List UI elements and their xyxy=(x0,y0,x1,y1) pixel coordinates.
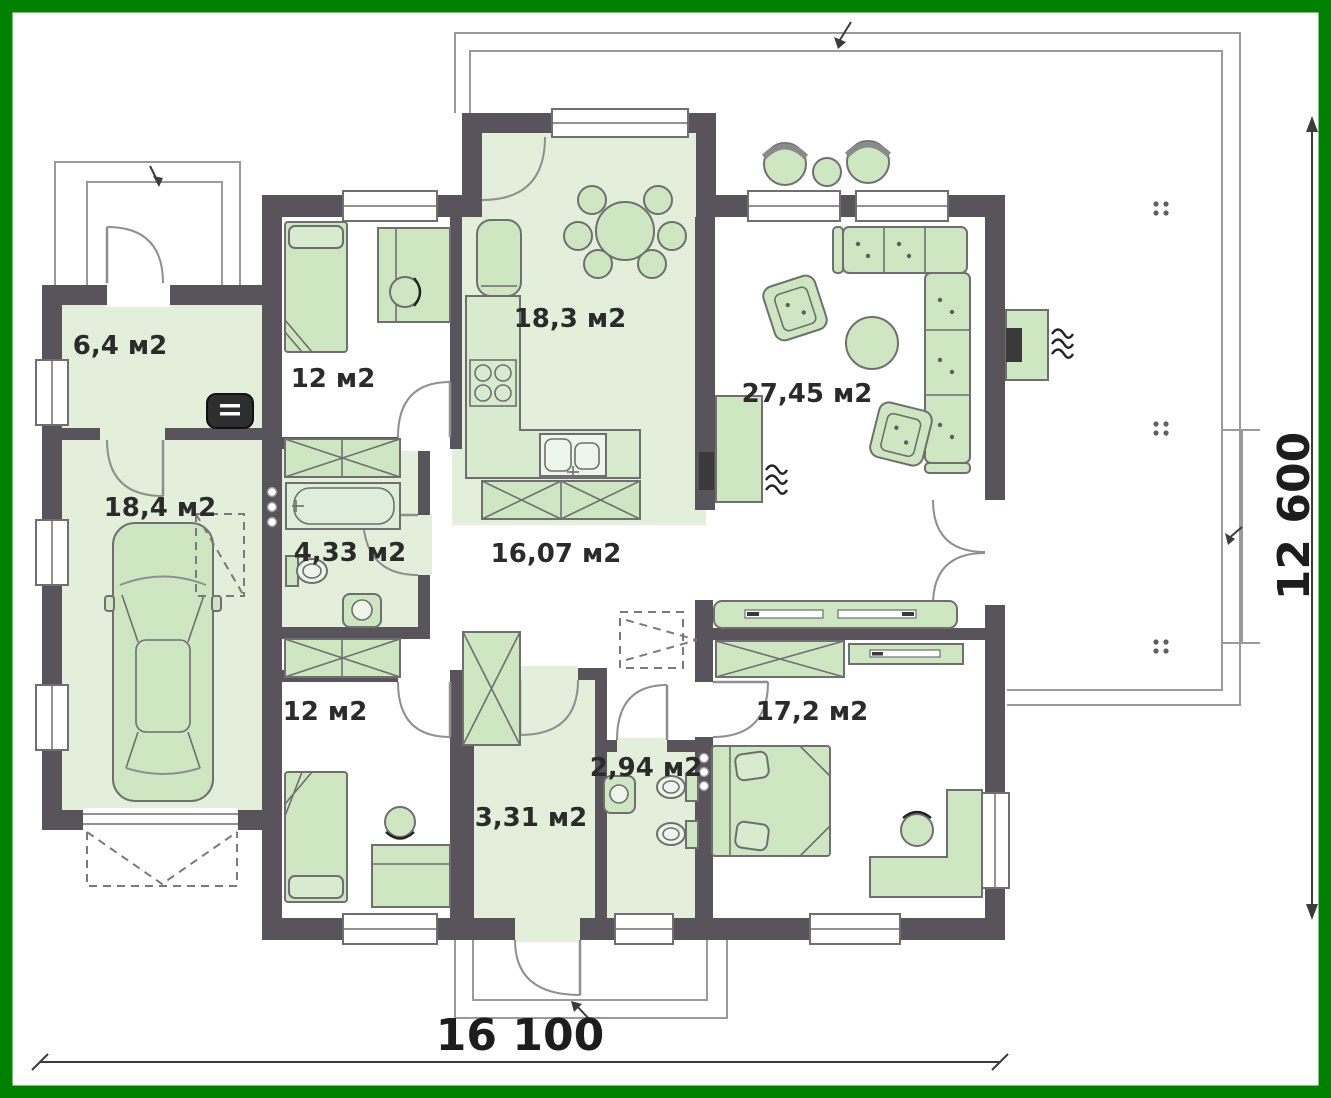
master-window-east xyxy=(981,793,1009,888)
floor-plan-image: 6,4 м2 12 м2 18,3 м2 27,45 м2 18,4 м2 4,… xyxy=(0,0,1331,1098)
wc-door xyxy=(617,685,667,740)
office-chair-bottom xyxy=(385,807,415,839)
master-west-wall-upper xyxy=(695,600,713,682)
sideboard xyxy=(714,601,957,628)
bedroom-bottom-door xyxy=(398,682,450,737)
double-bed xyxy=(712,746,830,856)
armchair-1 xyxy=(761,273,830,343)
side-entrance-porch xyxy=(55,162,240,285)
boiler xyxy=(207,394,253,428)
hall-wardrobe-kitchen xyxy=(482,481,640,519)
bidet-wc xyxy=(657,821,698,848)
hall-wardrobe-north xyxy=(285,439,400,477)
hallway-label: 16,07 м2 xyxy=(491,539,622,569)
dimension-bottom: 16 100 xyxy=(32,1010,1008,1070)
kitchen-sink xyxy=(540,434,606,476)
bedroom-bottom-window xyxy=(343,914,437,944)
dining-chair xyxy=(658,222,686,250)
vestibule-label: 6,4 м2 xyxy=(73,331,167,361)
single-bed-bottom xyxy=(285,772,347,902)
side-entrance-door xyxy=(107,227,163,283)
desk-bottom xyxy=(372,845,450,907)
bedroom-top-door xyxy=(398,382,450,437)
garden-table xyxy=(813,158,841,186)
wc-opening xyxy=(617,738,667,754)
bedroom-bottom-opening xyxy=(398,668,450,684)
bedroom-top-opening xyxy=(398,435,450,451)
height-dimension: 12 600 xyxy=(1269,432,1320,600)
living-window-2 xyxy=(856,191,948,221)
garden-chair xyxy=(847,141,889,183)
main-entrance-porch xyxy=(455,940,727,1021)
main-west-wall xyxy=(262,195,282,940)
vestibule-garage-opening xyxy=(100,426,165,442)
terrace-leader-bracket xyxy=(1222,430,1260,643)
master-opening xyxy=(693,682,715,737)
garage-apron xyxy=(87,832,237,886)
section-arrow-top xyxy=(834,22,851,49)
bedroom-top-east-wall xyxy=(450,217,462,449)
wc-window xyxy=(615,914,673,944)
kitchen-window xyxy=(552,109,688,137)
dining-chair xyxy=(564,222,592,250)
desk-top xyxy=(378,228,450,322)
garage-window-1 xyxy=(36,520,68,585)
garage-door-opening xyxy=(83,808,238,832)
master-window-south xyxy=(810,914,900,944)
main-entrance-opening xyxy=(515,916,580,942)
garage-label: 18,4 м2 xyxy=(104,493,217,523)
master-wardrobe xyxy=(716,641,844,677)
tv-screen xyxy=(699,452,714,490)
terrace-column xyxy=(1153,639,1168,653)
dimension-right: 12 600 xyxy=(1269,116,1320,920)
bedroom-bottom-label: 12 м2 xyxy=(283,697,368,727)
washbasin-bathroom xyxy=(343,594,381,627)
outdoor-fireplace xyxy=(1006,310,1073,380)
living-window-1 xyxy=(748,191,840,221)
width-dimension: 16 100 xyxy=(436,1010,604,1061)
attic-hatch xyxy=(620,612,697,668)
master-dresser xyxy=(849,644,963,664)
vestibule-window xyxy=(36,360,68,425)
garden-chair xyxy=(764,143,806,185)
master-north-wall xyxy=(695,628,985,640)
porch-arrow xyxy=(150,166,163,187)
vent-stack-garage xyxy=(268,488,277,527)
bedroom-top-window xyxy=(343,191,437,221)
coffee-table xyxy=(846,317,898,369)
dining-chair xyxy=(578,186,606,214)
garage-window-2 xyxy=(36,685,68,750)
bathtub xyxy=(286,483,400,529)
bathroom-opening xyxy=(416,515,432,575)
main-entrance-door xyxy=(515,940,580,995)
terrace-column xyxy=(1153,201,1168,215)
main-north-wall-east xyxy=(696,195,1005,217)
hall-wardrobe-tall xyxy=(463,632,520,745)
storage-label: 3,31 м2 xyxy=(475,803,588,833)
kitchen-label: 18,3 м2 xyxy=(514,304,627,334)
wc-label: 2,94 м2 xyxy=(590,753,703,783)
bathroom-south-wall xyxy=(282,627,430,639)
hall-wardrobe-south xyxy=(285,639,400,677)
bedroom-top-label: 12 м2 xyxy=(291,364,376,394)
office-chair-top xyxy=(390,277,420,307)
terrace-door-opening xyxy=(983,500,1007,605)
master-label: 17,2 м2 xyxy=(756,697,869,727)
fridge xyxy=(477,220,521,296)
living-label: 27,45 м2 xyxy=(742,379,873,409)
terrace-french-door xyxy=(933,500,985,605)
floor-plan-svg: 6,4 м2 12 м2 18,3 м2 27,45 м2 18,4 м2 4,… xyxy=(0,0,1331,1098)
storage-hall-opening xyxy=(520,666,578,682)
car xyxy=(105,523,221,801)
master-chair xyxy=(901,812,933,846)
side-entrance-opening xyxy=(107,283,170,307)
dining-chair xyxy=(644,186,672,214)
terrace-column xyxy=(1153,421,1168,435)
single-bed-top xyxy=(285,222,347,352)
bathroom-label: 4,33 м2 xyxy=(294,538,407,568)
